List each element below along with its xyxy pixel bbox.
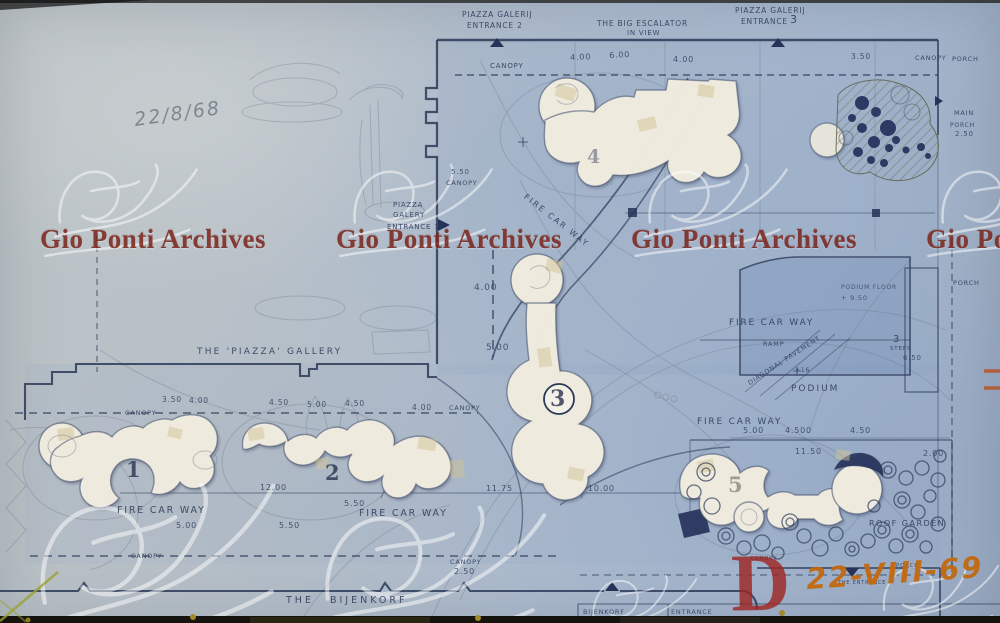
label-piazza: PIAZZA <box>393 202 423 209</box>
dim-650: 6.50 <box>903 355 922 362</box>
dim-500-fcw1: 5.00 <box>176 522 197 530</box>
dim-400-top-1: 4.00 <box>570 53 591 62</box>
label-ramp: RAMP <box>763 341 784 348</box>
watermark-archive-2: Gio Ponti Archives <box>336 224 562 255</box>
label-podium-floor: PODIUM FLOOR <box>841 285 897 291</box>
dim-4500: 4.500 <box>785 427 812 435</box>
label-fire-car-way-1: FIRE CAR WAY <box>117 506 206 516</box>
building-number-3: 3 <box>550 388 565 410</box>
label-entrance-3-number: 3 <box>790 14 798 25</box>
label-canopy-bottom-mid: CANOPY <box>450 559 482 566</box>
dim-500-mid: 5.00 <box>486 344 509 353</box>
dim-200: 2.00 <box>923 450 944 458</box>
dim-450-row-2: 4.50 <box>345 400 365 408</box>
dim-500-fcw4: 5.00 <box>743 427 764 435</box>
label-piazza-gallery: THE 'PIAZZA' GALLERY <box>197 348 342 357</box>
label-porch-topright: PORCH <box>952 56 979 63</box>
label-big-escalator: THE BIG ESCALATOR <box>597 20 688 28</box>
label-steps: STEPS <box>890 347 911 353</box>
label-plus16: +16 <box>795 368 810 374</box>
dim-1000: 10.00 <box>588 485 615 493</box>
dim-400-top-2: 4.00 <box>673 56 694 64</box>
dim-450-fcw4: 4.50 <box>850 427 871 435</box>
building-number-4: 4 <box>587 148 600 167</box>
label-entrance-cell: ENTRANCE <box>671 609 713 616</box>
label-canopy-bottom-left: CANOPY <box>131 553 163 560</box>
dim-1175: 11.75 <box>486 485 513 493</box>
dim-600-top: 6.00 <box>609 51 630 60</box>
dim-250-bottom: 2.50 <box>454 568 475 576</box>
watermark-archive-1: Gio Ponti Archives <box>40 224 266 255</box>
label-main: MAIN <box>954 110 974 117</box>
label-canopy-row-left: CANOPY <box>125 410 157 417</box>
dim-400-row: 4.00 <box>189 397 209 405</box>
label-canopy-entrance1: CANOPY <box>446 180 478 187</box>
dim-350-topright: 3.50 <box>851 53 871 61</box>
label-bijenkorf-cell: BIJENKORF <box>583 609 625 616</box>
building-number-1: 1 <box>126 459 141 480</box>
label-piazza-galerij-2: PIAZZA GALERIJ <box>462 11 532 19</box>
label-in-view: IN VIEW <box>627 30 660 37</box>
label-porch-right: PORCH <box>950 123 975 129</box>
label-fire-car-way-3: FIRE CAR WAY <box>729 319 814 328</box>
label-canopy-row-right: CANOPY <box>449 405 481 412</box>
dim-250-right: 2.50 <box>955 131 974 138</box>
label-steps-number: 3 <box>893 335 900 345</box>
dim-350-row: 3.50 <box>162 396 182 404</box>
dim-1150: 11.50 <box>795 448 822 456</box>
dim-950: + 9.50 <box>841 295 868 302</box>
dim-500-row: 5.00 <box>307 401 327 409</box>
label-podium: PODIUM <box>791 385 839 394</box>
label-entrance-2: ENTRANCE 2 <box>467 22 523 30</box>
watermark-archive-3: Gio Ponti Archives <box>631 224 857 255</box>
label-canopy-top: CANOPY <box>490 63 524 70</box>
building-number-2: 2 <box>325 462 340 483</box>
dim-550-mid: 5.50 <box>279 522 300 530</box>
label-canopy-topright: CANOPY <box>915 55 947 62</box>
dim-550-fcw2: 5.50 <box>344 500 365 508</box>
dim-550-entrance1: 5.50 <box>451 169 470 176</box>
label-roof-garden: ROOF GARDEN <box>869 520 945 528</box>
dim-450-row-1: 4.50 <box>269 399 289 407</box>
watermark-archive-4: Gio Ponti Archives <box>926 224 1000 255</box>
building-number-5: 5 <box>728 474 743 495</box>
dim-1200: 12.00 <box>260 484 287 492</box>
plan-drawing <box>0 0 1000 623</box>
label-entrance-3: ENTRANCE <box>741 18 788 26</box>
dim-400-mid: 4.00 <box>474 284 497 293</box>
blueprint-scan: PIAZZA GALERIJ ENTRANCE 2 THE BIG ESCALA… <box>0 0 1000 623</box>
dim-400-row-2: 4.00 <box>412 404 432 412</box>
label-fire-car-way-2: FIRE CAR WAY <box>359 509 448 519</box>
label-fire-car-way-4: FIRE CAR WAY <box>697 418 782 427</box>
stamp-letter-d: D <box>730 547 790 618</box>
label-the-bijenkorf: THE BIJENKORF <box>286 596 407 606</box>
label-porch-mid: PORCH <box>953 280 980 287</box>
label-galery: GALERY <box>393 212 425 219</box>
